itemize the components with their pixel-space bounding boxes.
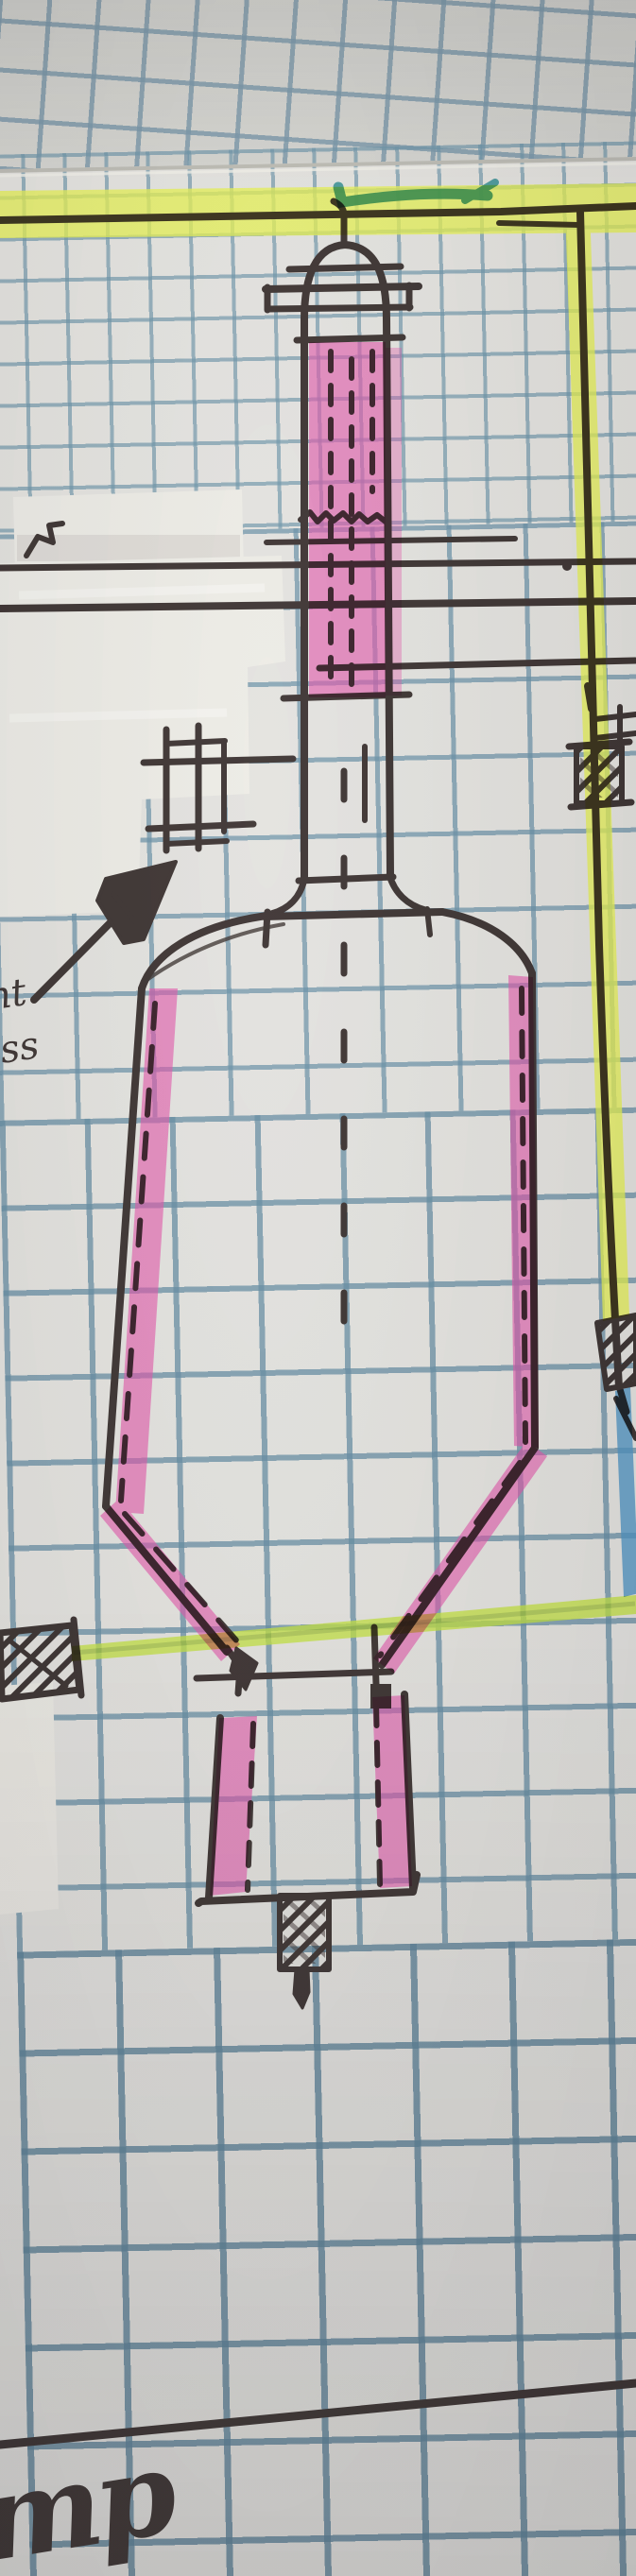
pink-column-band [309, 342, 386, 697]
photo-of-sketch: nt ss mp [0, 0, 636, 2576]
blue-diagonal-line [615, 1387, 636, 1597]
tape-patch-bottom-left [0, 1682, 59, 1915]
marker-blue [615, 1387, 636, 1597]
bottom-corner-scribble: mp [0, 2424, 180, 2576]
vessel-head [142, 875, 532, 988]
left-note-line2: ss [0, 1023, 42, 1073]
bottom-nozzle-valve [280, 1896, 329, 2008]
sheet-edge [0, 159, 636, 176]
vessel-wall-dashed-liners [121, 988, 525, 1501]
left-valve [0, 1620, 81, 1699]
top-flange-lines [266, 266, 419, 340]
ink-sketch-overlay [0, 0, 636, 2576]
yellow-top-band [0, 183, 636, 238]
pink-right-cone [373, 1441, 547, 1674]
